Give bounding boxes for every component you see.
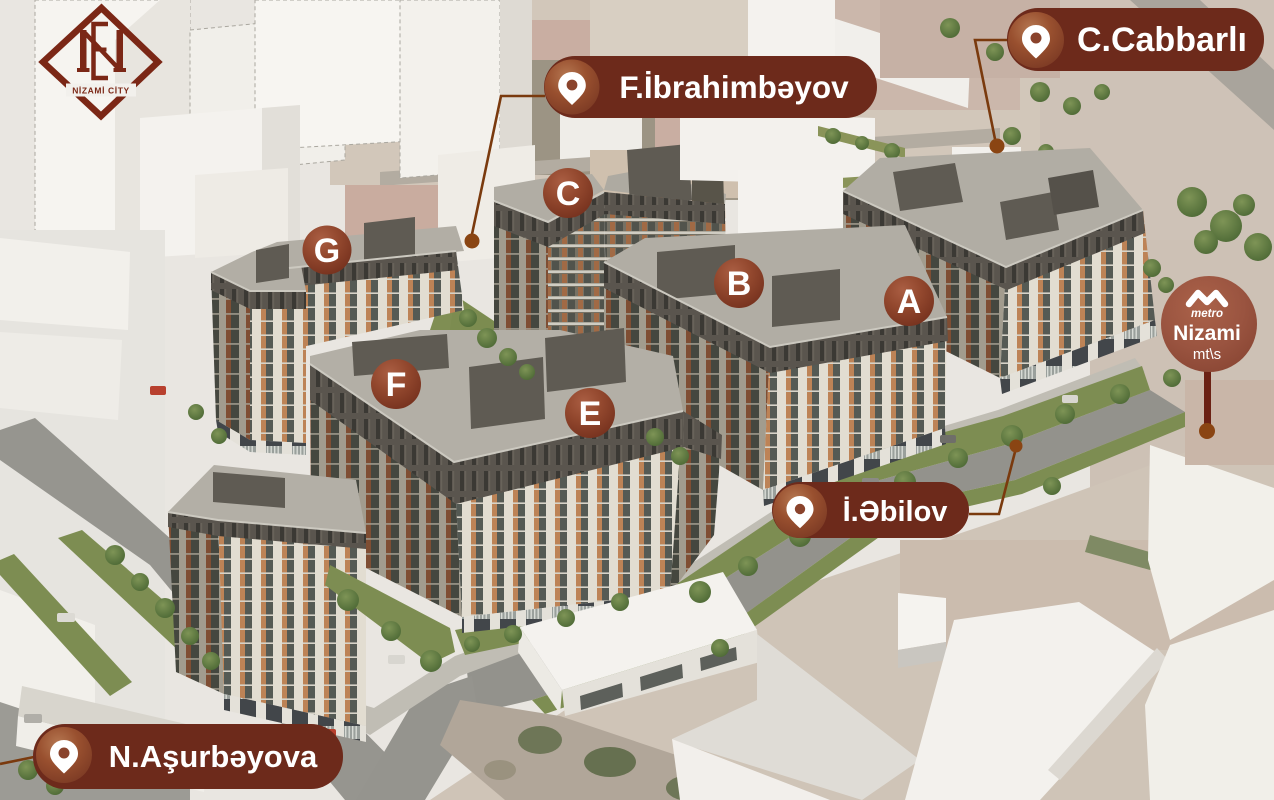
svg-text:mt\s: mt\s: [1193, 346, 1221, 363]
svg-text:Nizami: Nizami: [1173, 322, 1241, 345]
svg-text:C: C: [556, 175, 581, 213]
svg-text:G: G: [314, 232, 340, 270]
svg-text:F.İbrahimbəyov: F.İbrahimbəyov: [619, 69, 849, 105]
svg-text:A: A: [897, 283, 922, 321]
svg-text:F: F: [386, 366, 407, 404]
svg-text:N.Aşurbəyova: N.Aşurbəyova: [109, 739, 318, 774]
svg-text:NİZAMİ CİTY: NİZAMİ CİTY: [72, 86, 130, 96]
svg-text:İ.Əbilov: İ.Əbilov: [843, 496, 948, 528]
svg-text:B: B: [727, 265, 752, 303]
svg-text:E: E: [579, 395, 602, 433]
svg-text:C.Cabbarlı: C.Cabbarlı: [1077, 21, 1247, 59]
svg-text:metro: metro: [1191, 308, 1223, 320]
